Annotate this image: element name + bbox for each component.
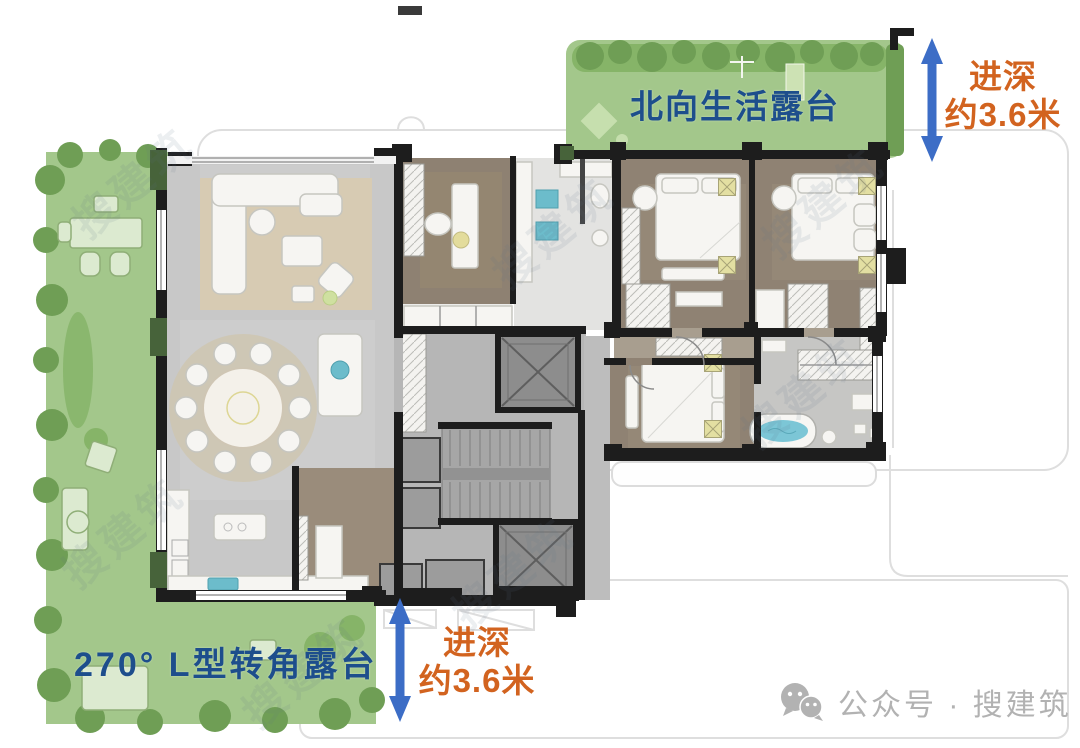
depth-bottom-line2: 约3.6米 [402,662,552,700]
elevator-1 [498,334,578,410]
depth-annotation-right: 进深 约3.6米 [936,58,1070,133]
corner-terrace-label: 270° L型转角露台 [74,637,378,686]
depth-right-line2: 约3.6米 [936,96,1070,134]
wechat-icon [778,682,826,722]
wechat-watermark: 公众号 · 搜建筑 [778,680,1072,724]
staircase [442,426,550,520]
depth-annotation-bottom: 进深 约3.6米 [402,624,552,699]
watermark-text: 公众号 · 搜建筑 [838,680,1072,724]
depth-bottom-line1: 进深 [402,624,552,662]
floor-plan-canvas: 搜建筑 搜建筑 搜建筑 搜建筑 搜建筑 搜建筑 搜建筑 北向生活露台 进深 约3… [0,0,1080,748]
depth-right-line1: 进深 [936,58,1070,96]
north-terrace-label: 北向生活露台 [566,80,904,128]
